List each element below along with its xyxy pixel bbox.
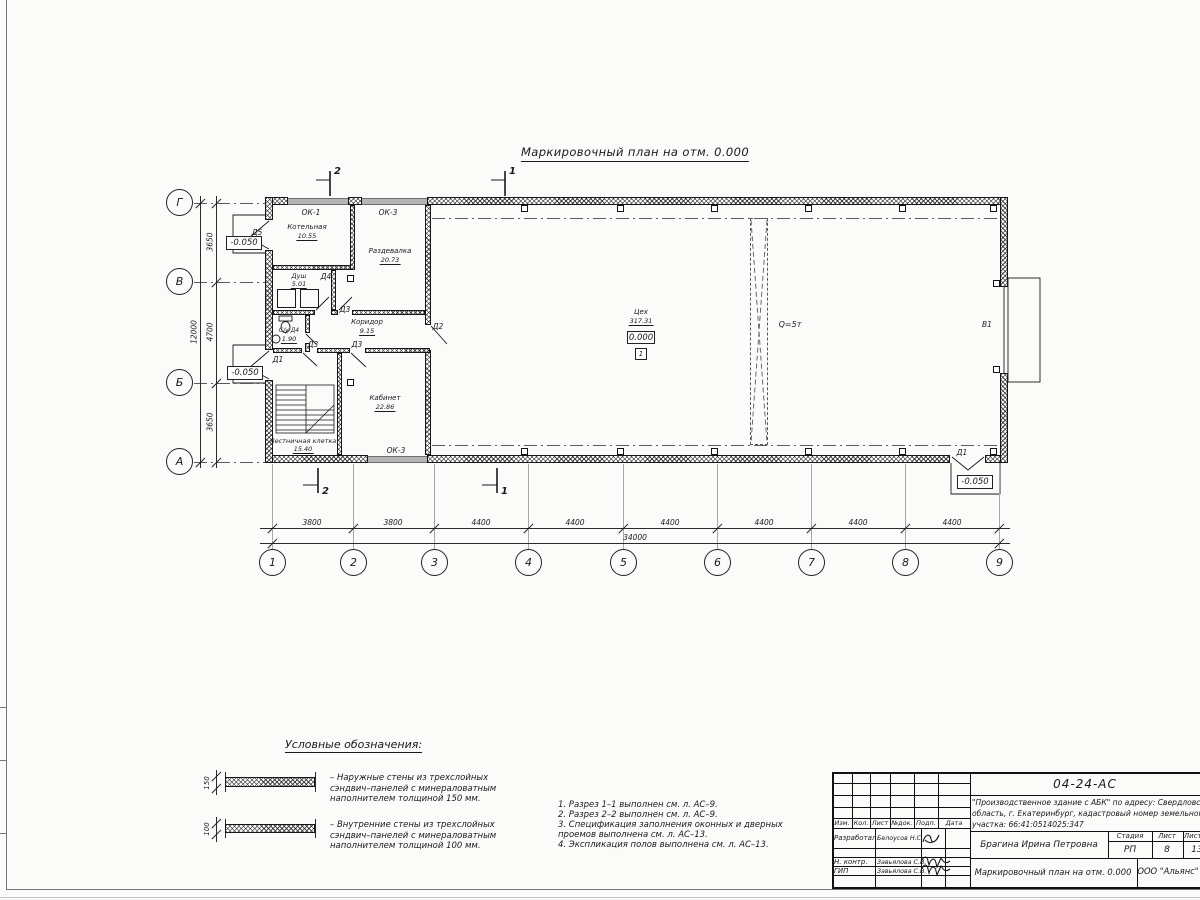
room-label-boiler: Котельная 10.55 [287, 223, 326, 241]
legend-wall-sample-100 [225, 824, 315, 833]
extension-line [353, 464, 354, 549]
dim-label: 4400 [848, 518, 867, 527]
grid-bubble-v: В [166, 268, 193, 295]
tb-line [832, 857, 970, 858]
tb-doc-title: Маркировочный план на отм. 0.000 [975, 867, 1132, 877]
elevation-box: -0.050 [227, 366, 263, 380]
tb-line [970, 858, 1200, 859]
column [711, 448, 718, 455]
section-label-2-bottom: 2 [322, 486, 329, 497]
tb-col-list: Лист [872, 819, 888, 827]
wall-interior [331, 310, 338, 315]
note-3: 3. Спецификация заполнения оконных и две… [558, 820, 783, 840]
tb-line [832, 828, 970, 829]
tb-line [1137, 858, 1138, 887]
tb-role-developed: Разработал [834, 834, 876, 842]
wall-interior [352, 310, 425, 315]
wall-top [427, 197, 1008, 205]
tb-name-ncontr: Завьялова С.В. [877, 859, 926, 866]
tb-company: ООО "Альянс" [1137, 866, 1198, 876]
sheet-frame-left [6, 0, 7, 890]
wall-right [1000, 373, 1008, 463]
crane-bridge [750, 218, 768, 445]
tb-sheets-value: 13 [1191, 845, 1200, 855]
section-label-2-top: 2 [334, 166, 341, 177]
tb-line [832, 772, 834, 888]
tb-line [852, 772, 853, 828]
legend-dim-100: 100 [203, 822, 211, 835]
wall-bottom [427, 455, 950, 463]
column [521, 448, 528, 455]
legend-title: Условные обозначения: [285, 738, 422, 753]
dimension-line [216, 196, 217, 468]
grid-bubble-6: 6 [704, 549, 731, 576]
grid-bubble-4: 4 [515, 549, 542, 576]
column [617, 205, 624, 212]
grid-axis-line [194, 383, 265, 384]
tb-col-podp: Подп. [916, 819, 936, 827]
wall-interior [425, 350, 431, 455]
dimension-line-total [260, 543, 1010, 544]
window-ok1 [288, 198, 348, 205]
tb-line [832, 848, 970, 849]
wall-left [265, 197, 273, 220]
grid-axis-line [194, 462, 265, 463]
wall-interior [337, 353, 342, 455]
sheet-frame-bottom [6, 889, 1200, 890]
tb-stage-value: РП [1124, 845, 1136, 855]
tb-name-gip: Завьялова С.В. [877, 868, 926, 875]
grid-bubble-5: 5 [610, 549, 637, 576]
dim-label-total: 34000 [623, 533, 647, 542]
grid-bubble-8: 8 [892, 549, 919, 576]
dim-label: 4400 [565, 518, 584, 527]
tb-doc-number: 04-24-АС [1053, 777, 1117, 791]
dim-label: 4400 [471, 518, 490, 527]
extension-line [434, 464, 435, 549]
window-tag-ok1: ОК-1 [302, 208, 321, 217]
page-title: Маркировочный план на отм. 0.000 [521, 145, 749, 162]
wall-interior [305, 315, 310, 333]
crane-capacity-label: Q=5т [779, 320, 802, 329]
tb-author: Брагина Ирина Петровна [980, 840, 1098, 850]
tb-col-ndok: №док. [891, 819, 912, 827]
tb-line [921, 828, 922, 887]
grid-bubble-7: 7 [798, 549, 825, 576]
column [990, 448, 997, 455]
room-label-changing: Раздевалка 20.73 [369, 247, 412, 265]
door-tag-d1-left: Д1 [273, 355, 284, 364]
grid-axis-line [194, 203, 265, 204]
tb-line [870, 772, 871, 828]
shower-stall [277, 289, 296, 308]
tb-line [832, 795, 970, 796]
wall-interior [273, 265, 355, 270]
note-4: 4. Экспликация полов выполнена см. л. АС… [558, 840, 783, 850]
column [521, 205, 528, 212]
dim-label: 3800 [383, 518, 402, 527]
door-tag-d2: Д2 [433, 322, 444, 331]
extension-line [999, 464, 1000, 549]
legend-sample-edge [315, 819, 316, 838]
door-tag-d3: Д3 [340, 305, 351, 314]
dim-label: 3650 [206, 412, 215, 431]
legend-sample-edge [315, 772, 316, 792]
tb-project: "Производственное здание с АБК" по адрес… [972, 797, 1200, 830]
wall-interior [317, 348, 350, 353]
room-label-shower: Душ 5.01 [291, 272, 307, 289]
window-ok3-top [362, 198, 427, 205]
wall-interior [425, 205, 431, 325]
column [990, 205, 997, 212]
wall-interior [365, 348, 430, 353]
crane-rail-line [432, 218, 1005, 219]
tb-line [938, 772, 939, 828]
dimension-line-total [200, 196, 201, 468]
door-tag-d4: Д4 [321, 272, 332, 281]
room-label-corridor: Коридор 9.15 [351, 318, 383, 336]
workshop-elevation-box: 0.000 [627, 331, 655, 344]
workshop-floor-mark-box: 1 [635, 348, 647, 360]
extension-line [528, 464, 529, 549]
room-label-wc: С/у Д4 1.90 [279, 327, 299, 344]
extension-line [905, 464, 906, 549]
legend-item-1: – Наружные стены из трехслойных сэндвич–… [330, 773, 496, 805]
notes-block: 1. Разрез 1–1 выполнен см. л. АС–9. 2. Р… [558, 800, 783, 850]
column [805, 448, 812, 455]
wall-right [1000, 197, 1008, 287]
tb-line [890, 772, 891, 828]
fold-mark [0, 707, 6, 708]
extension-line [811, 464, 812, 549]
dim-label: 4400 [660, 518, 679, 527]
tb-line [832, 866, 970, 867]
wall-interior [350, 205, 355, 270]
legend-item-2: – Внутренние стены из трехслойных сэндви… [330, 820, 496, 852]
column [899, 205, 906, 212]
column [899, 448, 906, 455]
window-tag-ok3-bottom: ОК-3 [387, 446, 406, 455]
legend-wall-sample-150 [225, 777, 315, 787]
column [617, 448, 624, 455]
grid-bubble-2: 2 [340, 549, 367, 576]
tb-line [1108, 841, 1200, 842]
tb-role-ncontr: Н. контр. [834, 858, 868, 866]
extension-line [272, 464, 273, 549]
section-label-1-top: 1 [509, 166, 516, 177]
note-2: 2. Разрез 2–2 выполнен см. л. АС–9. [558, 810, 783, 820]
column [993, 366, 1000, 373]
tb-col-kol: Кол. [854, 819, 869, 827]
column [711, 205, 718, 212]
grid-axis-line [194, 282, 265, 283]
shower-stall [300, 289, 319, 308]
grid-bubble-9: 9 [986, 549, 1013, 576]
section-label-1-bottom: 1 [501, 486, 508, 497]
door-tag-d3: Д3 [352, 340, 363, 349]
tb-line [832, 783, 970, 784]
tb-line [970, 772, 971, 888]
fold-mark [0, 760, 6, 761]
tb-line [832, 772, 1200, 774]
sheet-edge-bottom [0, 897, 1200, 898]
dim-label: 4700 [206, 322, 215, 341]
wall-top [348, 197, 362, 205]
fold-mark [0, 833, 6, 834]
signature-scribbles [921, 835, 950, 875]
tb-role-gip: ГИП [834, 867, 848, 875]
dimension-line [260, 528, 1010, 529]
tb-sheet-label: Лист [1158, 832, 1176, 840]
tb-line [970, 831, 1200, 832]
wall-interior [273, 348, 302, 353]
extension-line [717, 464, 718, 549]
dim-label-total: 12000 [190, 320, 199, 344]
grid-bubble-3: 3 [421, 549, 448, 576]
tb-line [970, 795, 1200, 796]
legend-dim-150: 150 [203, 776, 211, 789]
tb-col-data: Дата [946, 819, 963, 827]
tb-name-developed: Белоусов Н.С. [877, 835, 923, 842]
tb-col-izm: Изм. [834, 819, 849, 827]
grid-bubble-b: Б [166, 369, 193, 396]
room-label-workshop: Цех 317.31 [629, 308, 654, 326]
dim-label: 4400 [754, 518, 773, 527]
room-label-staircase: Лестничная клетка 15.40 [270, 437, 337, 454]
stairs [276, 385, 334, 433]
elevation-box: -0.050 [226, 236, 262, 250]
crane-rail-line [432, 445, 1005, 446]
tb-line [1152, 831, 1153, 858]
tb-line [914, 772, 915, 828]
door-tag-d1-bottom: Д1 [957, 448, 968, 457]
tb-line [832, 818, 970, 819]
window-tag-ok3-top: ОК-3 [379, 208, 398, 217]
grid-bubble-1: 1 [259, 549, 286, 576]
column [993, 280, 1000, 287]
note-1: 1. Разрез 1–1 выполнен см. л. АС–9. [558, 800, 783, 810]
gate-tag-v1: В1 [982, 320, 992, 329]
wall-left [265, 250, 273, 350]
window-ok3-bottom [368, 456, 427, 463]
tb-line [1183, 831, 1184, 858]
wall-interior [331, 270, 336, 310]
elevation-box: -0.050 [957, 475, 993, 489]
tb-line [945, 828, 946, 887]
tb-line [1108, 831, 1109, 858]
column [347, 275, 354, 282]
wall-bottom [265, 455, 368, 463]
grid-bubble-a: А [166, 448, 193, 475]
column [347, 379, 354, 386]
tb-line [832, 875, 970, 876]
door-tag-d3: Д3 [308, 340, 319, 349]
column [805, 205, 812, 212]
dim-label: 4400 [942, 518, 961, 527]
dim-label: 3650 [206, 232, 215, 251]
tb-line [875, 828, 876, 887]
tb-sheets-label: Листов [1184, 832, 1200, 840]
dim-label: 3800 [302, 518, 321, 527]
tb-stage-label: Стадия [1117, 832, 1144, 840]
grid-bubble-g: Г [166, 189, 193, 216]
tb-sheet-value: 8 [1164, 845, 1170, 855]
tb-line [832, 807, 970, 808]
room-label-office: Кабинет 22.86 [369, 394, 400, 412]
